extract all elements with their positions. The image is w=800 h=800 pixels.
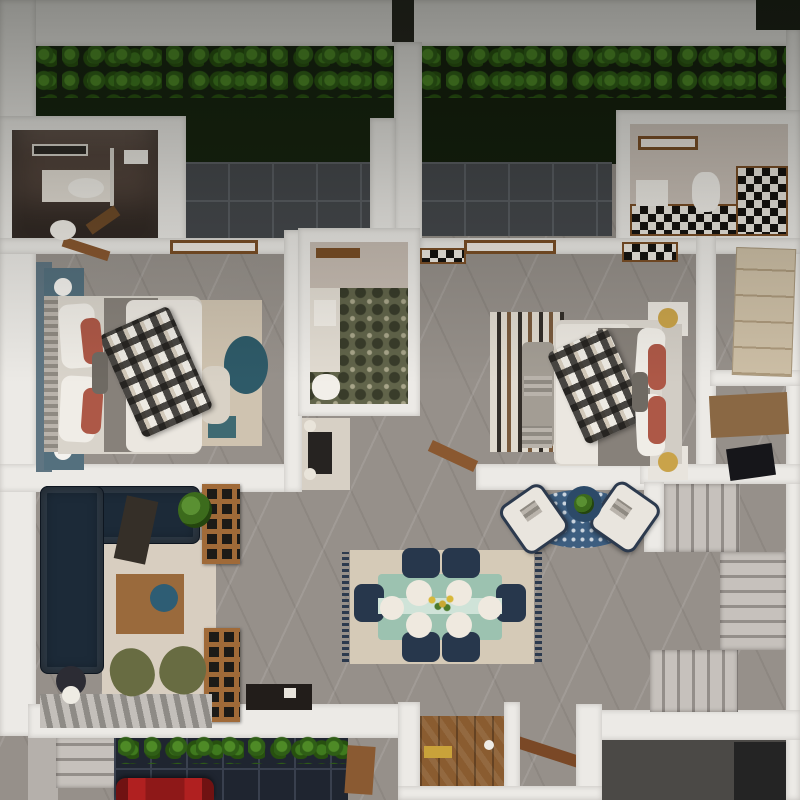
wall-divider-top bbox=[394, 42, 422, 248]
bed2-pillow-terracotta-2 bbox=[648, 396, 666, 444]
living-floor-lamp-bulb bbox=[62, 686, 80, 704]
hall-sideboard-knob-2 bbox=[304, 468, 316, 480]
bathroom3-tiles-b bbox=[736, 166, 788, 236]
bathroom3-window bbox=[638, 136, 698, 150]
dining-plate-5 bbox=[380, 596, 404, 620]
bedroom1-lamp-top bbox=[54, 278, 72, 296]
living-table-tray bbox=[150, 584, 178, 612]
wall-bedroom2-right bbox=[696, 230, 716, 484]
exterior-plants-row bbox=[118, 736, 348, 764]
nook-plant bbox=[574, 494, 594, 514]
bedroom2-lamp-top bbox=[658, 308, 678, 328]
bathroom1-sink bbox=[68, 178, 104, 198]
foyer-doormat bbox=[424, 746, 452, 758]
bathroom3-toilet bbox=[692, 172, 720, 212]
terrace-right-tiles bbox=[420, 162, 612, 236]
wall-foyer-left bbox=[398, 702, 420, 798]
hedge-left bbox=[36, 44, 396, 98]
bedroom2-bench-pillow-1 bbox=[524, 376, 552, 396]
bathroom2-sink bbox=[314, 300, 336, 326]
hedge-right bbox=[420, 44, 786, 98]
hall-console-card bbox=[284, 688, 296, 698]
bedroom2-lamp-bottom bbox=[658, 452, 678, 472]
stairs-upper-flight bbox=[664, 484, 740, 552]
closet-wardrobe bbox=[732, 247, 796, 377]
bedroom2-tile-strip bbox=[420, 248, 466, 264]
bed1-pillow-knit bbox=[92, 352, 108, 394]
floor-plan-render bbox=[0, 0, 800, 800]
living-sofa-left bbox=[40, 486, 104, 674]
living-lattice-screen-1 bbox=[202, 484, 240, 564]
living-plant bbox=[178, 492, 212, 528]
dining-plate-6 bbox=[478, 596, 502, 620]
car-roof bbox=[116, 778, 214, 800]
dining-plate-4 bbox=[446, 612, 472, 638]
stairs-lower-flight bbox=[650, 650, 738, 712]
bathroom1-towel bbox=[124, 150, 148, 164]
wall-foyer-mid bbox=[504, 702, 520, 798]
lower-level-cabinet bbox=[734, 742, 786, 800]
dining-chair-top-2 bbox=[442, 548, 480, 578]
bathroom2-shower-bar bbox=[316, 248, 360, 258]
foyer-door-knob bbox=[484, 740, 494, 750]
bedroom1-rug-circle bbox=[224, 336, 268, 394]
roof-notch-right bbox=[756, 0, 800, 30]
dining-chair-top-1 bbox=[402, 548, 440, 578]
bathroom2-toilet bbox=[312, 374, 340, 400]
roof-notch-center bbox=[392, 0, 414, 42]
bathroom1-shower-glass bbox=[110, 148, 114, 206]
bathroom1-toilet bbox=[50, 220, 76, 240]
entry-exterior-steps bbox=[56, 736, 118, 788]
hall-sideboard-knob-1 bbox=[304, 420, 316, 432]
bathroom3-sink bbox=[636, 180, 668, 206]
dining-plate-3 bbox=[406, 612, 432, 638]
bed2-pillow-knit bbox=[632, 372, 648, 412]
exterior-bench bbox=[344, 745, 375, 795]
bed1-headboard bbox=[44, 296, 58, 452]
exterior-left-wall bbox=[28, 736, 58, 800]
bed2-pillow-terracotta-1 bbox=[648, 344, 666, 390]
bathroom1-window bbox=[32, 144, 88, 156]
dining-centerpiece-flowers bbox=[426, 592, 456, 612]
bedroom2-vent bbox=[622, 242, 678, 262]
study-desk bbox=[709, 392, 789, 438]
bedroom2-window bbox=[464, 240, 556, 254]
study-laptop bbox=[726, 443, 776, 481]
hall-console bbox=[246, 684, 312, 710]
wall-foyer-bottom bbox=[398, 786, 602, 800]
stairs-right-flight bbox=[720, 552, 786, 650]
wall-under-stairs bbox=[596, 710, 800, 740]
bed1-pillow-terracotta-2 bbox=[80, 387, 103, 434]
bathroom3-tiles-a bbox=[630, 204, 742, 236]
wall-left bbox=[0, 0, 36, 736]
bedroom2-bench-pillow-2 bbox=[522, 426, 552, 448]
bedroom1-window bbox=[170, 240, 258, 254]
